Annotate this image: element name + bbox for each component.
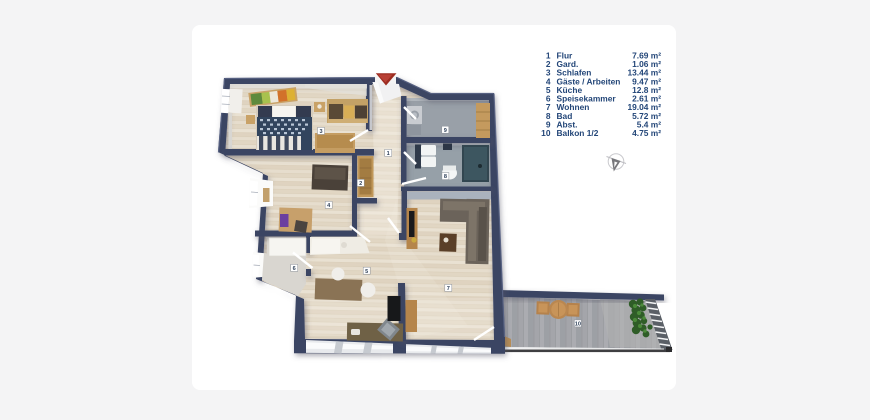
- svg-text:6: 6: [293, 266, 296, 272]
- svg-text:3: 3: [319, 129, 322, 135]
- svg-text:4.75 m²: 4.75 m²: [632, 128, 661, 138]
- svg-text:Balkon 1/2: Balkon 1/2: [557, 128, 599, 138]
- svg-text:10: 10: [541, 128, 551, 138]
- svg-text:2: 2: [359, 181, 362, 187]
- svg-text:1: 1: [387, 151, 390, 157]
- svg-text:8: 8: [444, 174, 447, 180]
- svg-text:5: 5: [365, 269, 368, 275]
- svg-text:7: 7: [447, 286, 450, 292]
- svg-text:10: 10: [575, 322, 581, 328]
- svg-text:9: 9: [444, 128, 447, 134]
